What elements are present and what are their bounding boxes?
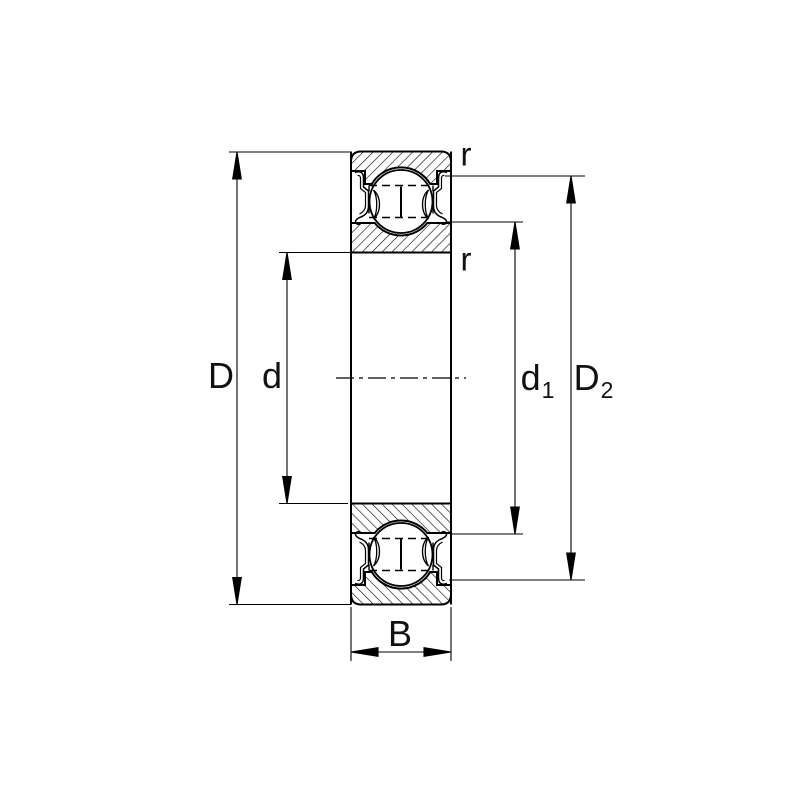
bearing-top-section [351,152,451,253]
arrow-up [567,176,576,203]
label-main: D [208,355,234,396]
arrow-up [283,253,292,280]
label-bore-diameter: d [262,358,282,394]
arrow-right [424,648,451,657]
label-outer-diameter: D [208,358,234,394]
page: { "diagram_type": "bearing-cross-section… [0,0,800,800]
label-radius-outer: r [461,138,472,171]
label-main: r [461,241,472,278]
arrow-up [233,152,242,179]
label-recess-diameter: D2 [574,360,613,396]
label-width: B [388,616,412,652]
bearing-cross-section-drawing [0,0,800,800]
arrow-down [233,578,242,605]
label-main: D [574,357,600,398]
label-main: d [262,355,282,396]
label-main: B [388,613,412,654]
label-main: d [521,357,541,398]
label-shoulder-diameter: d1 [521,360,554,396]
label-sub: 1 [542,377,555,403]
label-sub: 2 [601,377,614,403]
label-main: r [461,136,472,173]
arrow-down [511,507,520,534]
arrow-left [351,648,378,657]
bearing-bottom-section [351,504,451,605]
label-radius-inner: r [461,243,472,276]
dim-D [229,152,351,605]
arrow-down [567,553,576,580]
arrow-down [283,477,292,504]
arrow-up [511,222,520,249]
